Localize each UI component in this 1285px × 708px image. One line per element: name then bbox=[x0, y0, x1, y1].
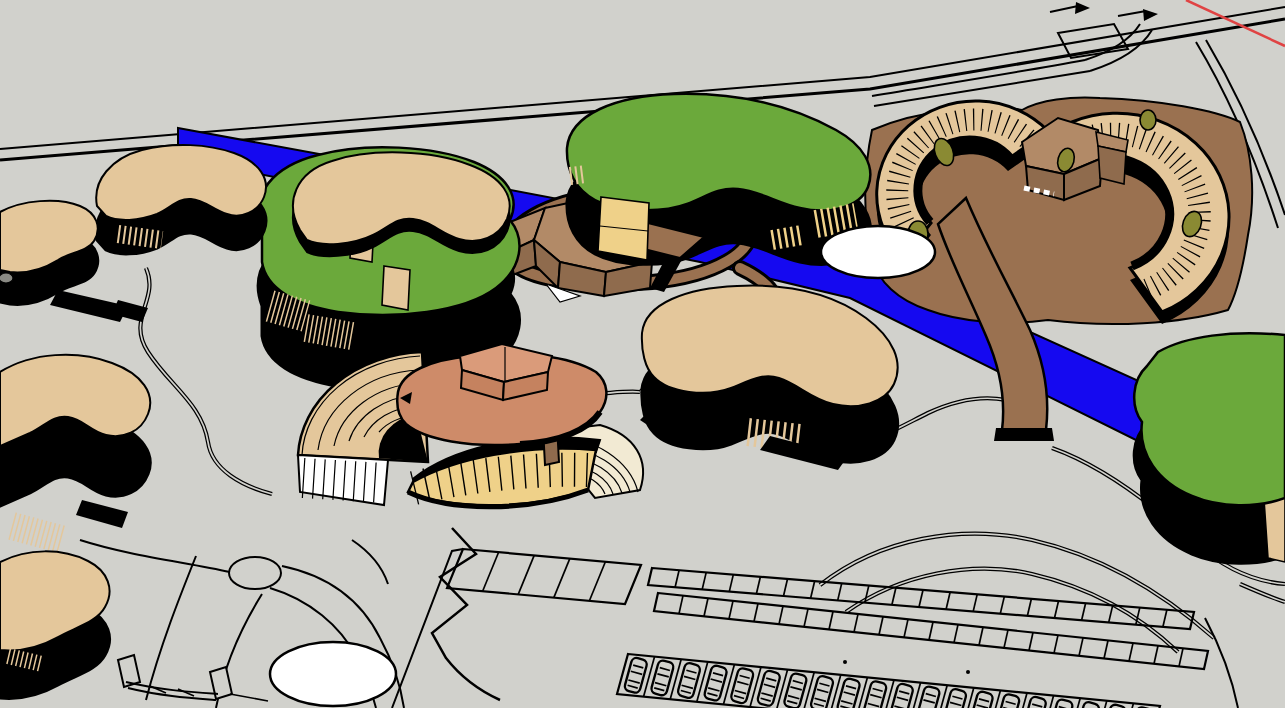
ramp-end-shadow bbox=[994, 428, 1054, 441]
ground-dot bbox=[843, 660, 847, 664]
green-roof-building-right-edge[interactable] bbox=[1134, 333, 1285, 563]
ground-dot bbox=[966, 670, 970, 674]
roundabout bbox=[229, 557, 281, 589]
roof-link bbox=[382, 266, 410, 310]
site-model-canvas[interactable] bbox=[0, 0, 1285, 708]
rock bbox=[0, 273, 13, 283]
house-annex-wall bbox=[1098, 146, 1126, 184]
model-viewport[interactable] bbox=[0, 0, 1285, 708]
white-oval-pond bbox=[821, 226, 935, 278]
bush bbox=[1140, 110, 1156, 130]
white-oval-pond bbox=[270, 642, 396, 706]
central-bean-building[interactable] bbox=[640, 286, 898, 470]
